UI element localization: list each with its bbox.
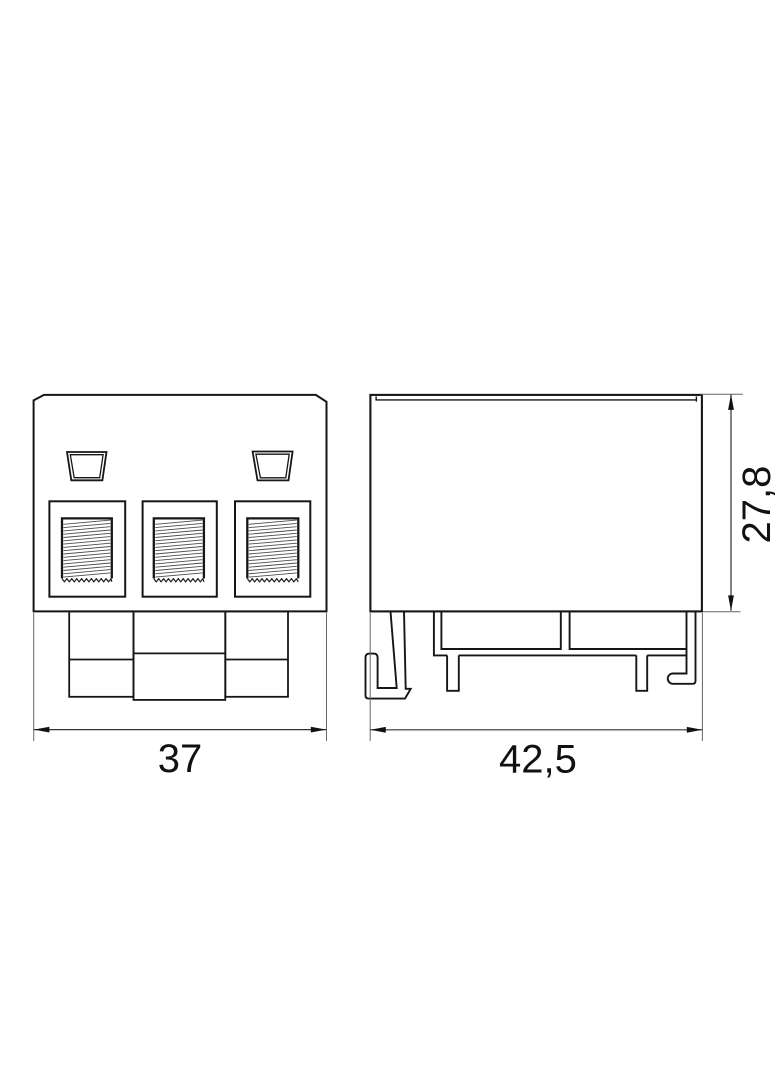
svg-text:37: 37 — [158, 737, 203, 781]
svg-text:42,5: 42,5 — [499, 738, 577, 782]
svg-text:27,8: 27,8 — [735, 466, 779, 544]
